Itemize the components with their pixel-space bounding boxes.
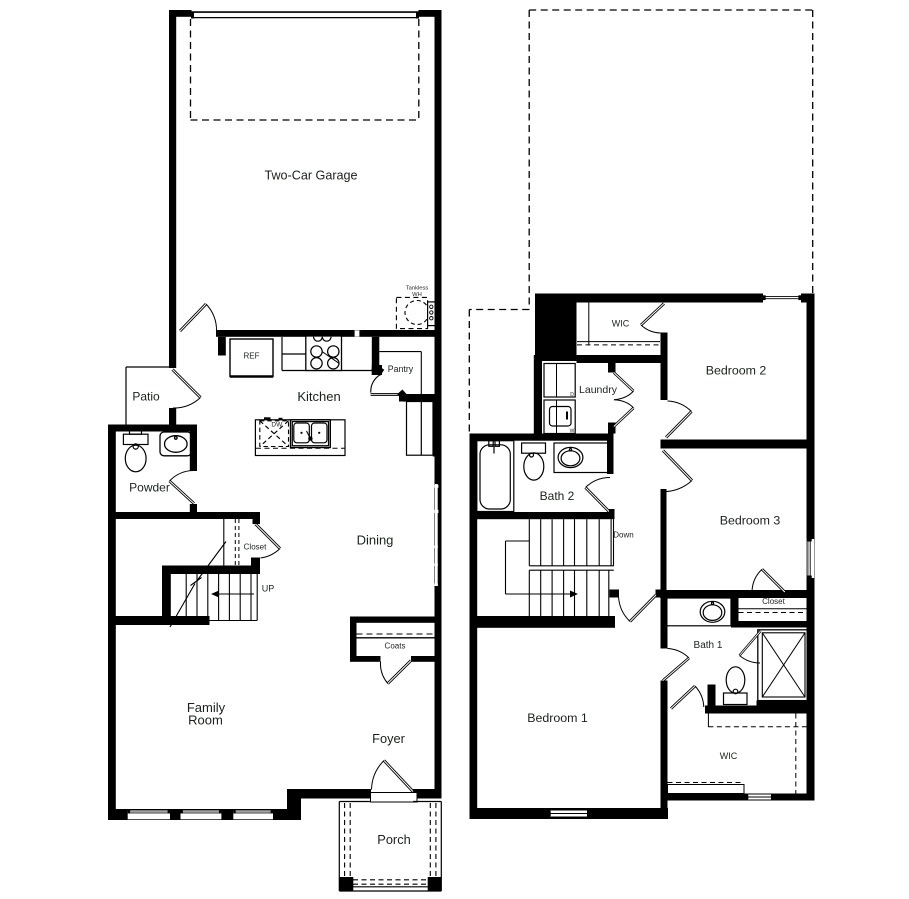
svg-text:WIC: WIC [612, 319, 630, 329]
svg-text:Porch: Porch [377, 832, 410, 847]
svg-text:Bedroom 1: Bedroom 1 [527, 711, 588, 725]
svg-text:Coats: Coats [385, 642, 406, 651]
svg-text:Foyer: Foyer [372, 731, 405, 746]
svg-text:Two-Car Garage: Two-Car Garage [264, 168, 357, 182]
svg-text:Closet: Closet [762, 597, 785, 606]
svg-text:WIC: WIC [720, 751, 738, 761]
svg-text:Pantry: Pantry [388, 364, 414, 374]
svg-text:Kitchen: Kitchen [297, 389, 340, 404]
svg-text:Tankless: Tankless [406, 286, 429, 292]
svg-text:Bath 2: Bath 2 [540, 489, 575, 503]
svg-text:Patio: Patio [132, 390, 160, 404]
svg-text:Bath 1: Bath 1 [694, 640, 723, 651]
svg-text:Dining: Dining [357, 533, 394, 548]
svg-text:REF: REF [244, 352, 260, 361]
svg-text:D: D [570, 392, 574, 398]
svg-text:Bedroom 2: Bedroom 2 [706, 363, 767, 377]
svg-text:DW: DW [271, 422, 283, 429]
svg-text:Laundry: Laundry [579, 384, 618, 396]
svg-text:UP: UP [262, 584, 275, 594]
svg-text:Bedroom 3: Bedroom 3 [720, 513, 781, 527]
svg-text:Powder: Powder [129, 481, 170, 495]
svg-text:Down: Down [613, 531, 633, 540]
svg-text:Closet: Closet [244, 543, 267, 552]
svg-text:Room: Room [188, 713, 223, 728]
